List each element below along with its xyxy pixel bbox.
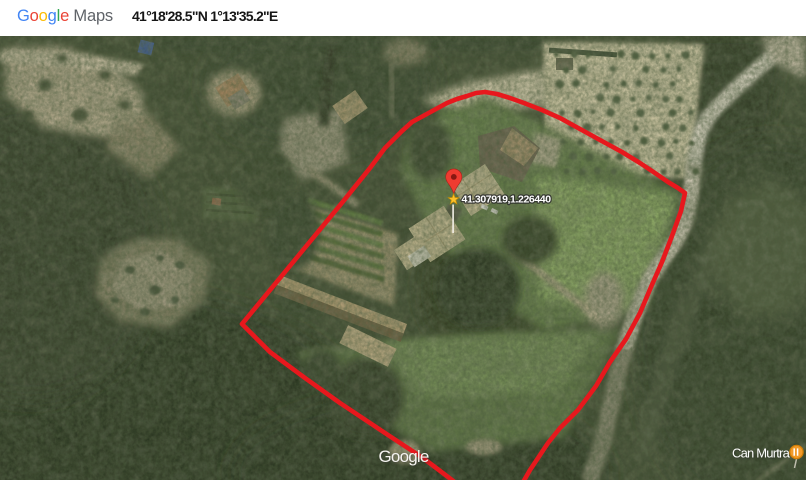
svg-text:Can Murtra: Can Murtra <box>732 446 791 461</box>
svg-text:41.307919,1.226440: 41.307919,1.226440 <box>462 194 552 206</box>
svg-text:Google: Google <box>379 447 429 466</box>
